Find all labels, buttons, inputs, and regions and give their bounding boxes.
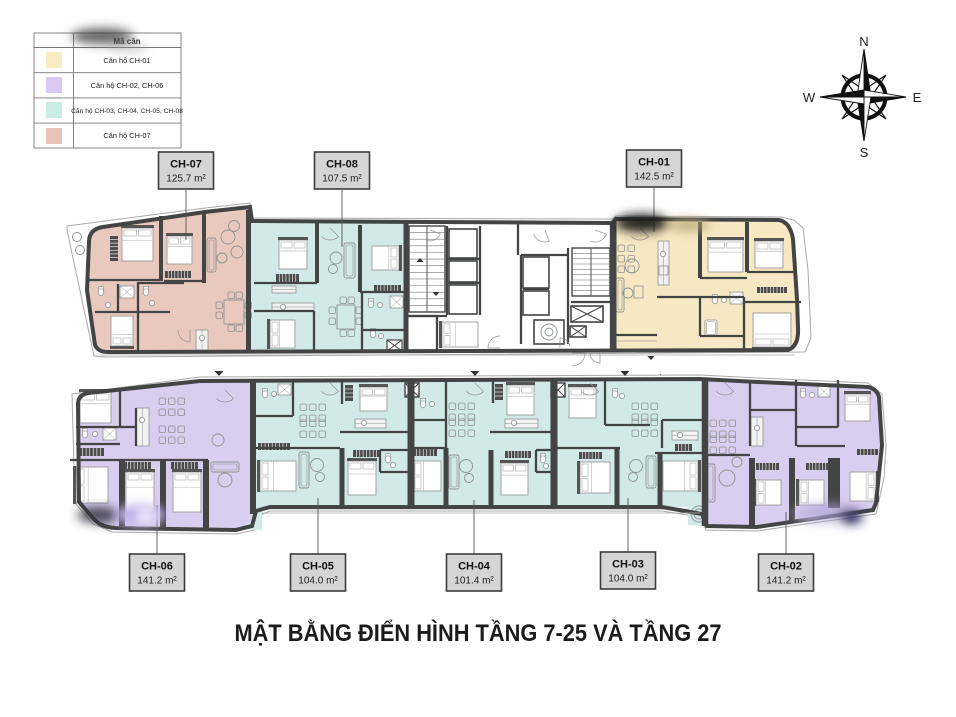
svg-text:104.0 m²: 104.0 m² <box>608 574 648 585</box>
svg-text:141.2 m²: 141.2 m² <box>137 576 177 587</box>
svg-text:CH-05: CH-05 <box>302 561 334 573</box>
svg-text:W: W <box>803 90 816 105</box>
svg-text:Căn hộ CH-07: Căn hộ CH-07 <box>103 131 150 140</box>
svg-text:N: N <box>859 34 868 49</box>
svg-text:Căn hộ CH-02, CH-06: Căn hộ CH-02, CH-06 <box>91 81 164 90</box>
svg-text:CH-04: CH-04 <box>458 561 491 573</box>
svg-text:142.5 m²: 142.5 m² <box>634 172 674 183</box>
svg-text:125.7 m²: 125.7 m² <box>166 174 206 185</box>
svg-text:CH-01: CH-01 <box>638 157 670 169</box>
svg-text:MẬT BẰNG ĐIỂN HÌNH TẦNG 7-25 V: MẬT BẰNG ĐIỂN HÌNH TẦNG 7-25 VÀ TẦNG 27 <box>235 619 722 647</box>
svg-text:Căn hộ CH-01: Căn hộ CH-01 <box>103 56 150 65</box>
svg-text:CH-07: CH-07 <box>170 159 202 171</box>
svg-text:Căn hộ CH-03, CH-04, CH-05, CH: Căn hộ CH-03, CH-04, CH-05, CH-08 <box>71 108 183 115</box>
svg-text:E: E <box>913 90 922 105</box>
svg-text:CH-06: CH-06 <box>141 561 173 573</box>
svg-text:101.4 m²: 101.4 m² <box>454 576 494 587</box>
svg-text:CH-02: CH-02 <box>770 561 802 573</box>
svg-text:S: S <box>860 145 869 160</box>
svg-text:107.5 m²: 107.5 m² <box>322 174 362 185</box>
svg-text:CH-08: CH-08 <box>326 159 358 171</box>
svg-text:104.0 m²: 104.0 m² <box>298 576 338 587</box>
svg-text:CH-03: CH-03 <box>612 559 644 571</box>
svg-text:141.2 m²: 141.2 m² <box>766 576 806 587</box>
